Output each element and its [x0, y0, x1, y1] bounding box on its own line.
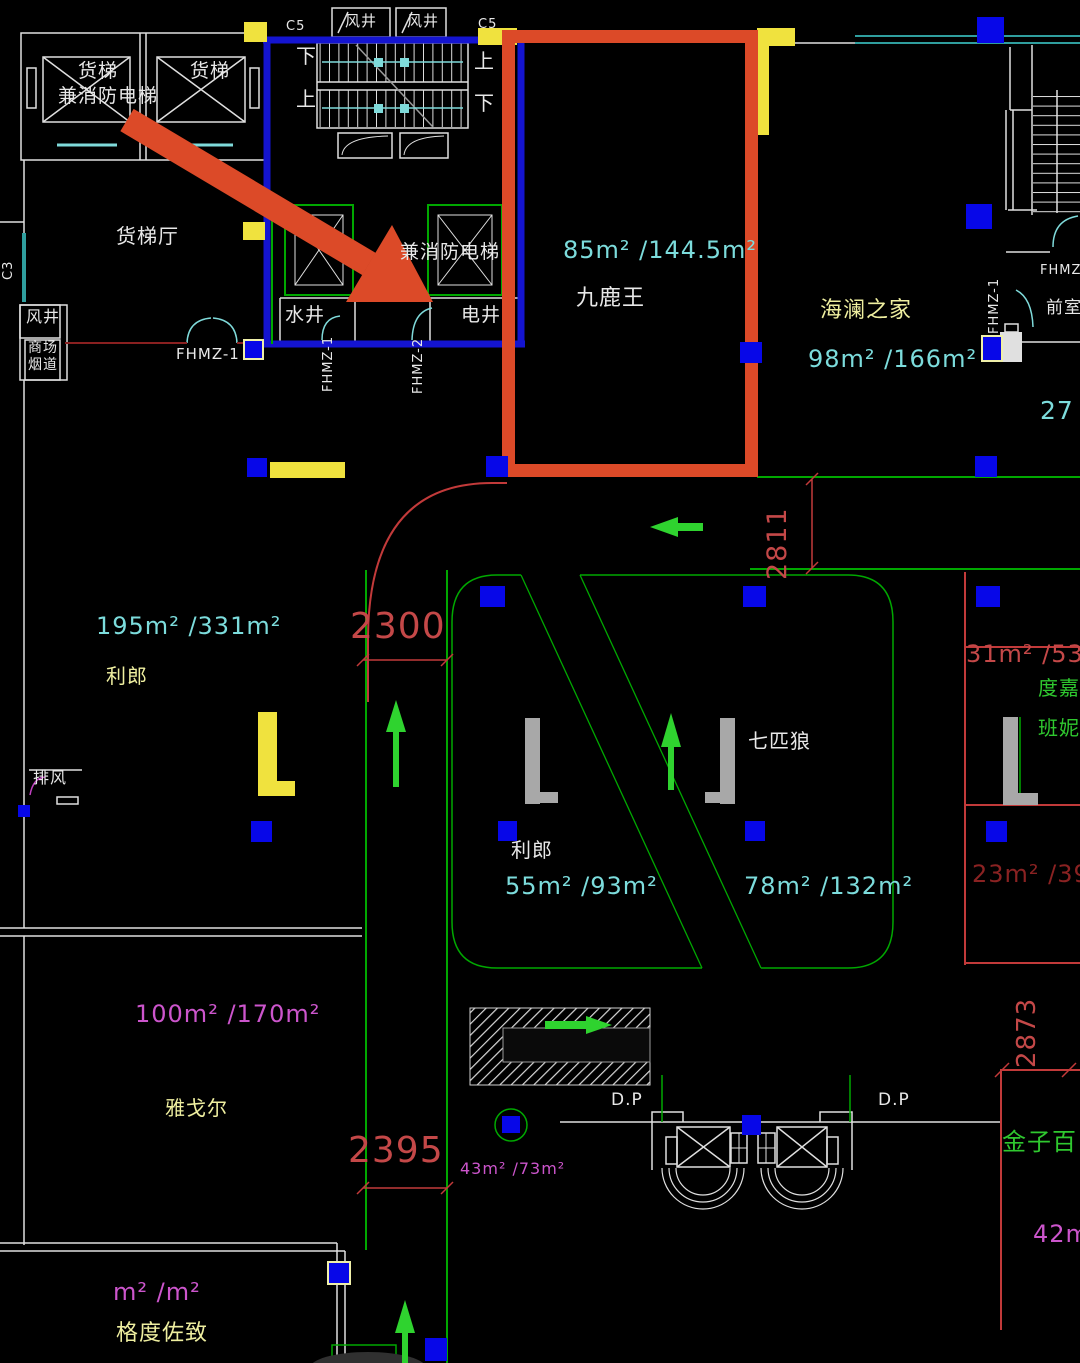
fhmz2-core-tag: FHMZ-2 [412, 338, 426, 394]
cargo-lift-2-label: 货梯 [190, 62, 230, 82]
dim-2811: 2811 [764, 507, 792, 580]
stair-down-left: 下 [296, 46, 317, 67]
shop-banni: 班妮 [1038, 718, 1080, 739]
area-78: 78m² /132m² [744, 874, 913, 899]
exhaust-label: 排风 [33, 770, 67, 787]
area-43: 43m² /73m² [460, 1161, 565, 1178]
shop-dujia: 度嘉 [1038, 678, 1080, 699]
shop-lilang-left: 利郎 [106, 666, 148, 687]
up-arrow-icon [661, 713, 681, 747]
shop-jiuluwang: 九鹿王 [576, 287, 645, 310]
shop-lilang-mid: 利郎 [511, 840, 553, 861]
area-23: 23m² /39m² [972, 862, 1080, 887]
dark-blob [310, 1352, 426, 1363]
dp-right: D.P [878, 1092, 910, 1110]
cargo-hall-label: 货梯厅 [116, 226, 179, 247]
stair-up-right: 上 [474, 51, 495, 72]
cargo-lift-1-label: 货梯 [78, 62, 118, 82]
area-195: 195m² /331m² [96, 614, 281, 639]
shop-hailan: 海澜之家 [820, 299, 912, 322]
area-blank: m² /m² [113, 1280, 201, 1305]
left-arrow-icon [650, 517, 678, 537]
walls-teal [24, 36, 1080, 343]
dp-left: D.P [611, 1092, 643, 1110]
mall-flue-line1: 商场 [28, 341, 58, 356]
area-98: 98m² /166m² [808, 347, 977, 372]
wind-shaft-top-2: 风井 [407, 14, 439, 30]
front-room-label: 前室 [1046, 300, 1080, 318]
cad-floorplan-canvas: 货梯兼消防电梯货梯C5风井风井C5下上上下货梯厅C3风井商场烟道FHMZ-1兼消… [0, 0, 1080, 1363]
wind-shaft-left: 风井 [26, 309, 60, 326]
shop-jinzibai: 金子百 [1002, 1130, 1077, 1155]
fhmz-right-partial: FHMZ- [1040, 264, 1080, 278]
annotation-arrow [127, 120, 433, 302]
grid-c3: C3 [2, 261, 16, 280]
fire-lift-label: 兼消防电梯 [400, 243, 500, 263]
fhmz1-hall-tag: FHMZ-1 [176, 347, 240, 363]
area-100: 100m² /170m² [135, 1002, 320, 1027]
fhmz1-core-tag: FHMZ-1 [322, 336, 336, 392]
mall-flue-line2: 烟道 [28, 358, 58, 373]
water-shaft-label: 水井 [285, 306, 325, 326]
area-85: 85m² /144.5m² [563, 238, 757, 263]
dim-2395: 2395 [348, 1132, 444, 1170]
shop-qipilang: 七匹狼 [748, 731, 811, 752]
stair-down-right: 下 [474, 93, 495, 114]
up-arrow-icon [395, 1300, 415, 1333]
hatched-pit [470, 1008, 650, 1085]
elec-shaft-label: 电井 [461, 306, 501, 326]
area-27: 27 [1040, 398, 1074, 424]
stair-up-left: 上 [296, 89, 317, 110]
wind-shaft-top-1: 风井 [345, 14, 377, 30]
up-arrow-icon [386, 700, 406, 732]
dim-2300: 2300 [350, 608, 446, 646]
shop-geduzuozhi: 格度佐致 [116, 1322, 208, 1345]
fhmz1-right-tag: FHMZ-1 [988, 278, 1002, 334]
grid-c5-right: C5 [478, 18, 497, 32]
shop-yagor: 雅戈尔 [165, 1098, 228, 1119]
area-42: 42m² [1033, 1222, 1080, 1247]
lines-red [357, 473, 1080, 1330]
area-55: 55m² /93m² [505, 874, 658, 899]
dim-2873: 2873 [1014, 998, 1041, 1068]
cargo-fire-lift-label: 兼消防电梯 [58, 87, 158, 107]
area-31: 31m² /53m² [966, 642, 1080, 667]
grid-c5-left: C5 [286, 20, 305, 34]
